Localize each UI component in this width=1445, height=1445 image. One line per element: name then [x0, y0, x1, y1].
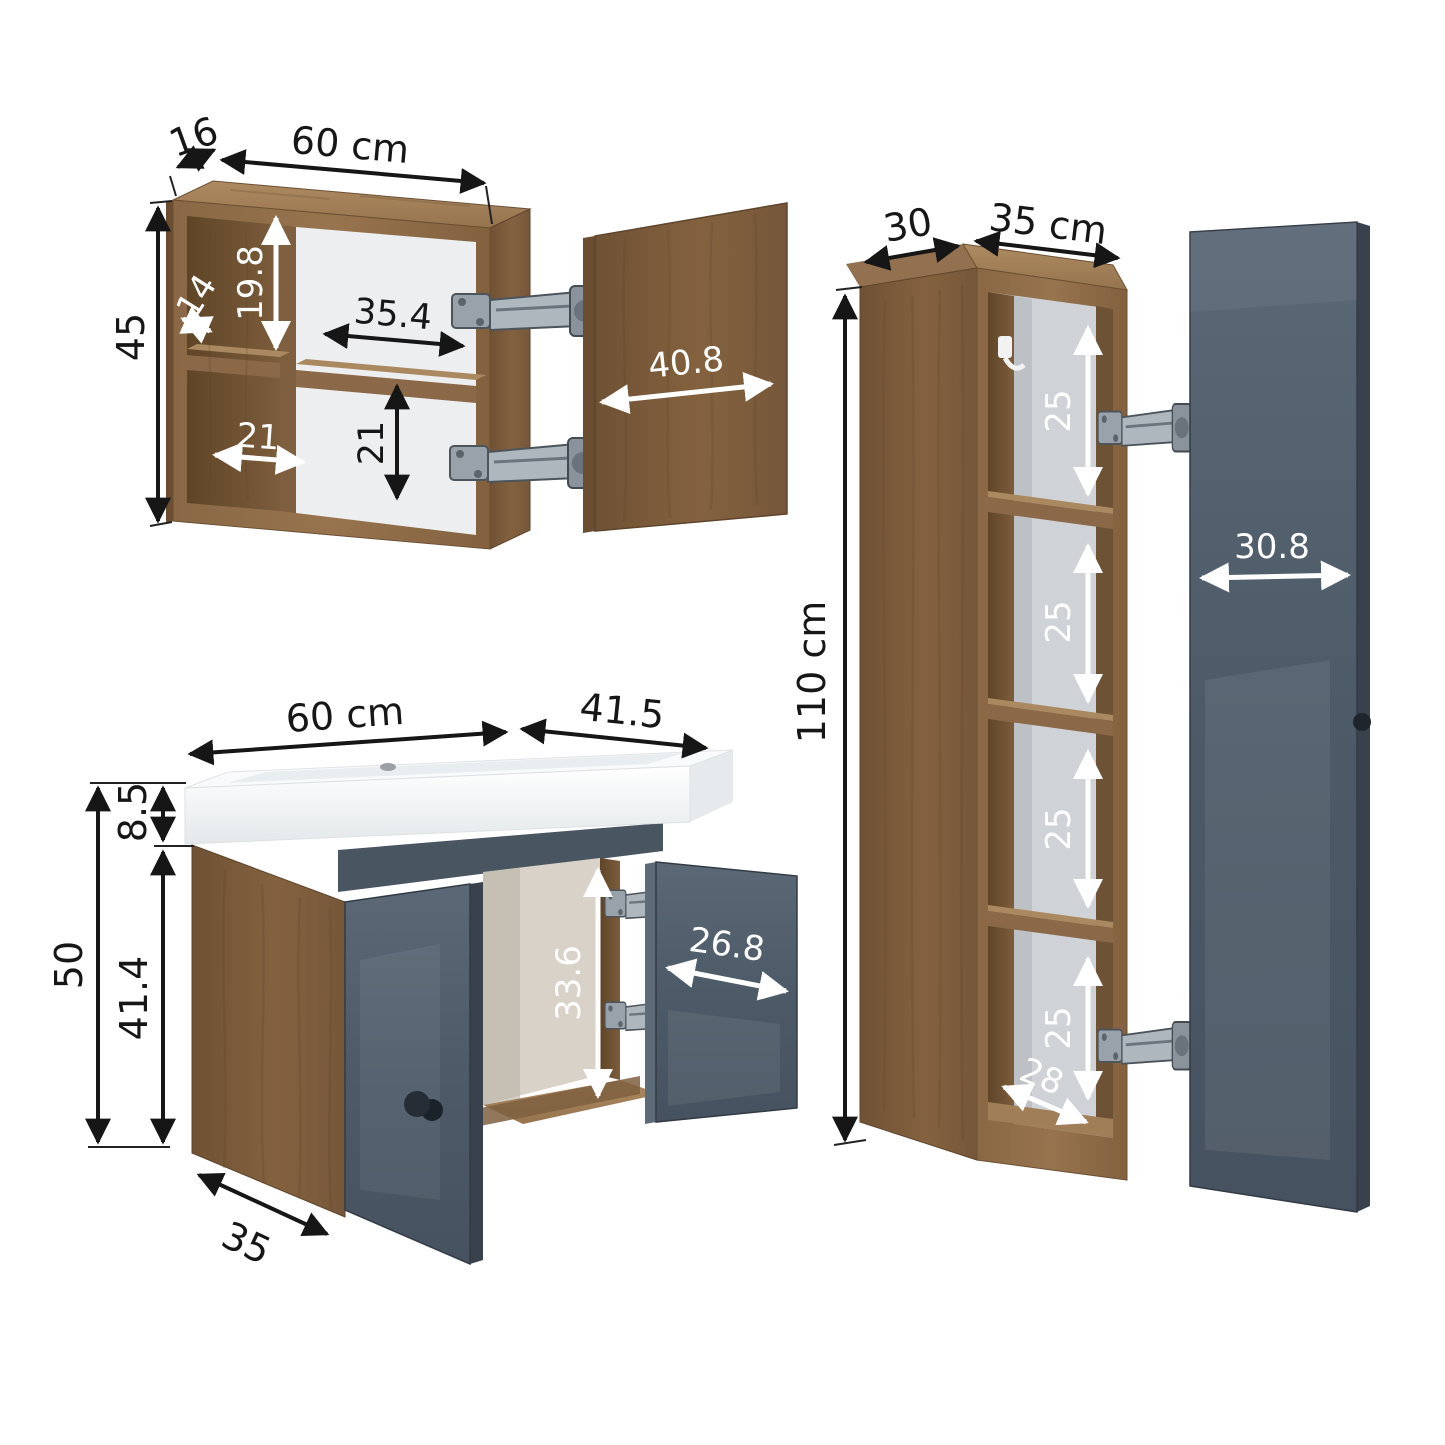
mirror-depth-label: 16 [163, 108, 223, 166]
tall-dim-height: 110 cm [790, 287, 866, 1145]
product-dimension-diagram: 16 60 cm 45 19.8 14 21 35.4 [0, 0, 1445, 1445]
diagram-svg: 16 60 cm 45 19.8 14 21 35.4 [0, 0, 1445, 1445]
tall-door-width-label: 30.8 [1234, 527, 1310, 567]
vanity-sink-height-label: 8.5 [111, 782, 155, 842]
tall-depth-label: 30 [880, 199, 935, 251]
mirror-upper-height-label: 19.8 [231, 245, 271, 321]
vanity-interior-height-label: 33.6 [549, 945, 589, 1021]
mirror-lower-width-label: 21 [235, 416, 281, 459]
tall-cabinet-door-knob [1353, 713, 1371, 731]
mirror-middle-width-label: 35.4 [352, 292, 433, 339]
vanity-total-height-label: 50 [47, 941, 91, 989]
vanity-sink-depth-label: 41.5 [578, 685, 667, 738]
vanity-right-door-edge [645, 862, 656, 1124]
vanity-right-door-reflection [668, 1010, 780, 1106]
tall-cabinet-diagram: 30 35 cm 110 cm 25 25 25 25 [790, 195, 1371, 1212]
vanity-dim-sink-depth: 41.5 [522, 685, 706, 748]
mirror-height-label: 45 [109, 313, 153, 361]
vanity-interior-shadow [483, 868, 520, 1105]
tall-cabinet-door-reflection [1205, 660, 1330, 1160]
mirror-cabinet-left-edge [166, 200, 173, 523]
tall-shelf-1-label: 25 [1039, 389, 1079, 432]
vanity-cabinet-depth-label: 35 [215, 1213, 277, 1273]
vanity-diagram: 33.6 26.8 60 cm 41.5 [47, 685, 797, 1274]
mirror-lower-height-label: 21 [352, 421, 392, 466]
vanity-left-door-reflection [360, 944, 440, 1200]
mirror-cabinet-diagram: 16 60 cm 45 19.8 14 21 35.4 [109, 108, 787, 549]
mirror-dim-height: 45 [109, 201, 172, 526]
tall-cabinet-hinge-bottom [1098, 1022, 1191, 1070]
tall-shelf-2-label: 25 [1039, 600, 1079, 643]
vanity-cabinet-height-label: 41.4 [112, 956, 156, 1041]
vanity-width-label: 60 cm [284, 689, 405, 741]
mirror-door-width-label: 40.8 [646, 339, 725, 387]
vanity-dim-cabinet-height: 41.4 [112, 852, 163, 1142]
tall-height-label: 110 cm [790, 601, 834, 744]
tall-shelf-3-label: 25 [1039, 807, 1079, 850]
vanity-dim-width: 60 cm [190, 689, 506, 754]
vanity-left-door-edge [470, 882, 483, 1264]
vanity-dim-sink-height: 8.5 [90, 782, 194, 846]
mirror-cabinet-door-edge [583, 236, 595, 533]
vanity-left-side-panel [192, 845, 345, 1217]
vanity-door-knob [404, 1091, 430, 1117]
sink-faucet-hole [380, 763, 396, 771]
tall-cabinet-door-highlight [1190, 222, 1357, 312]
tall-cabinet-side-face [860, 268, 977, 1160]
tall-cabinet-hinge-top [1098, 404, 1191, 452]
mirror-width-label: 60 cm [289, 118, 411, 172]
tall-shelf-4-label: 25 [1039, 1006, 1079, 1049]
mirror-cabinet-divider [280, 225, 296, 513]
mirror-cabinet-right-side [490, 209, 530, 549]
